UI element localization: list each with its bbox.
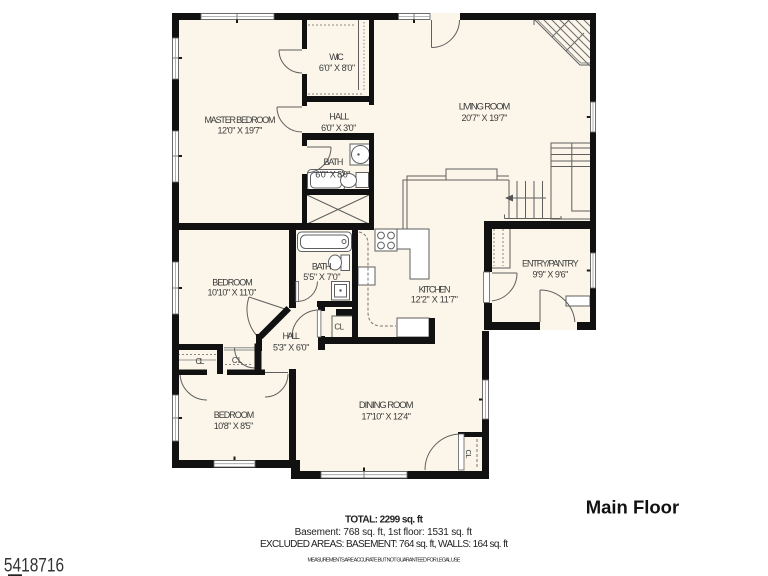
svg-text:17'10" X 12'4": 17'10" X 12'4": [362, 411, 411, 421]
svg-text:Main Floor: Main Floor: [586, 497, 680, 518]
svg-text:6'0" X 8'0": 6'0" X 8'0": [315, 170, 350, 180]
svg-text:DINING ROOM: DINING ROOM: [359, 400, 414, 411]
svg-text:10'10" X 11'0": 10'10" X 11'0": [208, 288, 257, 298]
svg-text:MASTER BEDROOM: MASTER BEDROOM: [205, 115, 276, 125]
svg-text:12'2" X 11'7": 12'2" X 11'7": [411, 295, 458, 305]
svg-text:BATH: BATH: [323, 157, 343, 167]
svg-text:5'3" X 6'0": 5'3" X 6'0": [273, 342, 309, 352]
svg-text:CL: CL: [334, 322, 344, 331]
svg-text:BEDROOM: BEDROOM: [212, 277, 253, 287]
svg-text:9'9" X 9'6": 9'9" X 9'6": [532, 270, 568, 280]
svg-text:HALL: HALL: [282, 331, 300, 341]
svg-text:ENTRY/PANTRY: ENTRY/PANTRY: [522, 259, 579, 269]
svg-text:CL: CL: [232, 356, 243, 365]
svg-text:CL: CL: [464, 450, 473, 459]
svg-text:5'5" X 7'0": 5'5" X 7'0": [303, 272, 340, 282]
svg-text:BATH: BATH: [312, 261, 332, 271]
svg-text:20'7" X 19'7": 20'7" X 19'7": [462, 113, 508, 123]
svg-text:LIVING ROOM: LIVING ROOM: [459, 102, 511, 113]
svg-text:CL: CL: [195, 357, 204, 366]
svg-text:5418716: 5418716: [4, 555, 64, 576]
svg-text:TOTAL: 2299 sq. ft: TOTAL: 2299 sq. ft: [345, 514, 424, 525]
svg-text:BEDROOM: BEDROOM: [214, 410, 255, 420]
svg-text:KITCHEN: KITCHEN: [419, 284, 451, 294]
svg-text:WIC: WIC: [329, 52, 344, 62]
svg-text:Basement: 768 sq. ft, 1st floo: Basement: 768 sq. ft, 1st floor: 1531 sq…: [295, 527, 473, 538]
svg-text:12'0" X 19'7": 12'0" X 19'7": [218, 125, 263, 135]
svg-text:MEASUREMENTS ARE ACCURATE BUT: MEASUREMENTS ARE ACCURATE BUT NOT GUARAN…: [308, 557, 461, 563]
svg-text:6'0" X 8'0": 6'0" X 8'0": [319, 63, 355, 73]
svg-text:10'8" X 8'5": 10'8" X 8'5": [214, 421, 254, 431]
svg-text:EXCLUDED AREAS: BASEMENT: 764: EXCLUDED AREAS: BASEMENT: 764 sq. ft, WA…: [260, 539, 508, 550]
svg-text:HALL: HALL: [329, 111, 349, 121]
svg-text:6'0" X 3'0": 6'0" X 3'0": [321, 123, 356, 133]
